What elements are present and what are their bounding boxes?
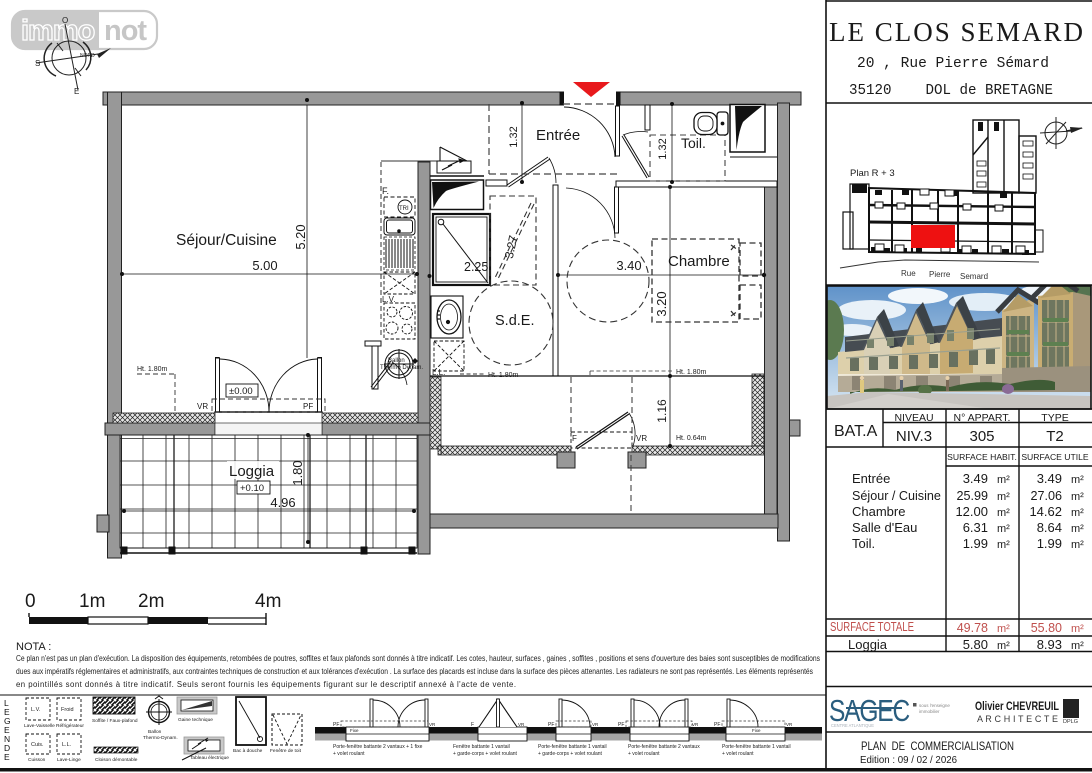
svg-text:5.20: 5.20 [293, 224, 308, 249]
svg-text:20 , Rue Pierre Sémard: 20 , Rue Pierre Sémard [857, 56, 1049, 72]
svg-text:m²: m² [1071, 507, 1084, 519]
svg-text:35120 DOL de BRETAGNE: 35120 DOL de BRETAGNE [849, 83, 1053, 99]
svg-text:Cuisson: Cuisson [28, 757, 46, 763]
svg-text:Soffite / Faux-plafond: Soffite / Faux-plafond [92, 718, 138, 724]
svg-text:+ volet roulant: + volet roulant [628, 751, 660, 757]
svg-text:en pointillés sont donnés à ti: en pointillés sont donnés à titre indica… [16, 680, 516, 689]
svg-text:Séjour / Cuisine: Séjour / Cuisine [852, 489, 941, 503]
svg-text:Porte-fenêtre battante 1 vanta: Porte-fenêtre battante 1 vantail [722, 744, 791, 750]
svg-text:LE CLOS SEMARD: LE CLOS SEMARD [829, 17, 1085, 47]
svg-text:VR: VR [518, 722, 525, 727]
svg-text:Entrée: Entrée [852, 471, 890, 486]
svg-text:VR: VR [592, 722, 599, 727]
svg-text:Ce plan n'est pas un plan d'ex: Ce plan n'est pas un plan d'exécution. L… [16, 654, 820, 663]
svg-text:Fixe: Fixe [350, 728, 359, 733]
svg-text:Chambre: Chambre [852, 504, 905, 519]
svg-text:Fenêtre de toit: Fenêtre de toit [270, 748, 302, 754]
svg-text:N° APPART.: N° APPART. [954, 412, 1011, 424]
svg-text:NIV.3: NIV.3 [896, 428, 932, 445]
svg-text:PF: PF [618, 722, 624, 728]
svg-text:A R C H I T E C T E: A R C H I T E C T E [977, 714, 1058, 724]
svg-text:Froid: Froid [61, 707, 74, 713]
svg-text:SURFACE UTILE: SURFACE UTILE [1021, 452, 1089, 462]
svg-text:Séjour/Cuisine: Séjour/Cuisine [176, 232, 277, 249]
svg-text:Ballon: Ballon [148, 729, 162, 735]
svg-text:2.25: 2.25 [464, 260, 488, 274]
svg-text:Ballon: Ballon [388, 358, 405, 364]
svg-text:m²: m² [1071, 623, 1084, 635]
svg-text:Loggia: Loggia [848, 637, 888, 652]
svg-text:sous l'enseigne: sous l'enseigne [919, 703, 950, 708]
svg-text:3.40: 3.40 [616, 258, 641, 273]
svg-text:m²: m² [997, 623, 1010, 635]
svg-text:E: E [74, 87, 79, 96]
svg-text:not: not [104, 15, 147, 47]
svg-text:Gaine technique: Gaine technique [178, 717, 213, 723]
svg-text:6.31: 6.31 [963, 520, 988, 535]
svg-text:5.80: 5.80 [963, 637, 988, 652]
svg-text:1.32: 1.32 [657, 138, 669, 159]
svg-text:VR: VR [692, 722, 699, 727]
svg-text:PF: PF [548, 722, 554, 728]
svg-text:0: 0 [25, 591, 36, 612]
svg-text:Rue: Rue [901, 269, 916, 278]
svg-text:Porte-fenêtre battante 2 vanta: Porte-fenêtre battante 2 vantaux [628, 744, 700, 750]
svg-text:Toil.: Toil. [681, 135, 706, 151]
svg-text:5.00: 5.00 [252, 258, 277, 273]
svg-text:immobilier: immobilier [919, 709, 940, 714]
svg-text:m²: m² [997, 474, 1010, 486]
svg-text:F: F [471, 722, 474, 728]
svg-text:m²: m² [997, 491, 1010, 503]
svg-text:VR: VR [636, 434, 647, 443]
svg-text:PF: PF [333, 722, 339, 728]
svg-text:PLAN DE COMMERCIALISATION: PLAN DE COMMERCIALISATION [861, 740, 1014, 753]
svg-text:S: S [35, 59, 40, 68]
svg-text:1.99: 1.99 [963, 536, 988, 551]
svg-text:O: O [62, 16, 68, 25]
svg-text:L.L.: L.L. [62, 742, 72, 748]
svg-text:E: E [4, 752, 10, 762]
svg-text:Ht. 1.80m: Ht. 1.80m [676, 369, 707, 376]
svg-text:Fixe: Fixe [752, 728, 761, 733]
svg-text:±0.00: ±0.00 [229, 386, 253, 397]
svg-text:SURFACE TOTALE: SURFACE TOTALE [830, 620, 914, 634]
svg-text:Tableau électrique: Tableau électrique [190, 755, 229, 761]
svg-text:SAGEC: SAGEC [829, 693, 910, 728]
svg-text:NORD: NORD [80, 53, 95, 59]
svg-text:8.93: 8.93 [1037, 637, 1062, 652]
svg-text:Thermo-Dynam.: Thermo-Dynam. [143, 735, 178, 741]
svg-text:SURFACE HABIT.: SURFACE HABIT. [947, 452, 1017, 462]
svg-text:m²: m² [997, 640, 1010, 652]
svg-text:Toil.: Toil. [852, 536, 875, 551]
svg-text:Porte-fenêtre battante 1 vanta: Porte-fenêtre battante 1 vantail [538, 744, 607, 750]
svg-text:PF: PF [714, 722, 720, 728]
svg-text:m²: m² [997, 539, 1010, 551]
svg-text:55.80: 55.80 [1031, 621, 1062, 635]
svg-text:1.32: 1.32 [508, 126, 520, 147]
svg-text:25.99: 25.99 [956, 489, 988, 503]
svg-text:m²: m² [1071, 640, 1084, 652]
svg-text:T2: T2 [1046, 428, 1064, 445]
svg-text:3.49: 3.49 [1037, 471, 1062, 486]
svg-text:Lave-Linge: Lave-Linge [57, 757, 81, 763]
svg-text:VR: VR [429, 722, 436, 727]
svg-text:12.00: 12.00 [955, 504, 988, 519]
svg-text:m²: m² [1071, 539, 1084, 551]
svg-text:m²: m² [1071, 523, 1084, 535]
svg-text:m²: m² [1071, 474, 1084, 486]
svg-text:Bac à douche: Bac à douche [233, 748, 263, 754]
svg-text:1m: 1m [79, 591, 105, 612]
svg-text:8.64: 8.64 [1037, 520, 1062, 535]
svg-text:+ garde-corps + volet roulant: + garde-corps + volet roulant [538, 751, 603, 757]
svg-text:CENTRE ATLANTIQUE: CENTRE ATLANTIQUE [831, 723, 874, 729]
svg-text:4.96: 4.96 [270, 495, 295, 510]
svg-text:49.78: 49.78 [957, 621, 988, 635]
svg-text:Chambre: Chambre [668, 253, 730, 270]
svg-text:Entrée: Entrée [536, 127, 580, 144]
svg-text:L.L.: L.L. [432, 368, 445, 377]
svg-text:DPLG: DPLG [1063, 719, 1078, 725]
svg-text:Salle d'Eau: Salle d'Eau [852, 520, 917, 535]
svg-text:Semard: Semard [960, 272, 988, 281]
svg-text:Réfrigérateur: Réfrigérateur [56, 723, 84, 729]
svg-text:14.62: 14.62 [1029, 504, 1062, 519]
svg-text:Plan R + 3: Plan R + 3 [850, 168, 895, 179]
svg-text:Pierre: Pierre [929, 270, 951, 279]
svg-text:+0.10: +0.10 [240, 483, 264, 494]
svg-text:NOTA :: NOTA : [16, 641, 51, 653]
svg-text:1.16: 1.16 [655, 399, 669, 423]
svg-text:PF: PF [303, 402, 313, 411]
svg-text:m²: m² [1071, 491, 1084, 503]
svg-text:TRI: TRI [399, 206, 409, 212]
svg-text:1.80: 1.80 [290, 460, 305, 485]
svg-text:1.99: 1.99 [1037, 536, 1062, 551]
svg-text:F.: F. [382, 186, 389, 196]
svg-text:2m: 2m [138, 591, 164, 612]
svg-text:VR: VR [786, 722, 793, 727]
svg-text:TYPE: TYPE [1041, 412, 1068, 424]
svg-text:3.49: 3.49 [963, 471, 988, 486]
svg-text:Ht. 1.80m: Ht. 1.80m [488, 372, 519, 379]
svg-text:Cuis.: Cuis. [31, 742, 44, 748]
svg-text:4m: 4m [255, 591, 281, 612]
svg-text:+ volet roulant: + volet roulant [722, 751, 754, 757]
svg-text:Lave-Vaisselle: Lave-Vaisselle [24, 723, 55, 729]
svg-text:Thermo Dynam.: Thermo Dynam. [380, 365, 423, 371]
svg-text:305: 305 [969, 428, 994, 445]
svg-text:27.06: 27.06 [1030, 489, 1062, 503]
svg-text:Ht. 1.80m: Ht. 1.80m [137, 366, 168, 373]
svg-text:Loggia: Loggia [229, 463, 275, 480]
svg-text:dues aux impératifs réglementa: dues aux impératifs réglementaires et ad… [16, 667, 813, 676]
svg-text:NIVEAU: NIVEAU [894, 412, 933, 424]
svg-text:3.20: 3.20 [654, 291, 669, 316]
svg-text:Cloison démontable: Cloison démontable [95, 757, 138, 763]
svg-text:Olivier CHEVREUIL: Olivier CHEVREUIL [975, 699, 1059, 713]
svg-text:VR: VR [197, 402, 208, 411]
svg-text:BAT.A: BAT.A [834, 423, 878, 440]
svg-text:+ volet roulant: + volet roulant [333, 751, 365, 757]
svg-text:Fenêtre battante 1 vantail: Fenêtre battante 1 vantail [453, 744, 510, 750]
svg-text:Edition : 09 / 02 / 2026: Edition : 09 / 02 / 2026 [860, 754, 957, 766]
svg-text:m²: m² [997, 507, 1010, 519]
svg-text:L.V.: L.V. [31, 707, 41, 713]
svg-text:S.d.E.: S.d.E. [495, 313, 535, 329]
svg-text:+ garde-corps + volet roulant: + garde-corps + volet roulant [453, 751, 518, 757]
svg-text:m²: m² [997, 523, 1010, 535]
svg-text:Porte-fenêtre battante 2 vanta: Porte-fenêtre battante 2 vantaux + 1 fix… [333, 744, 423, 750]
svg-text:Ht. 0.64m: Ht. 0.64m [676, 435, 707, 442]
svg-text:F: F [572, 434, 577, 443]
